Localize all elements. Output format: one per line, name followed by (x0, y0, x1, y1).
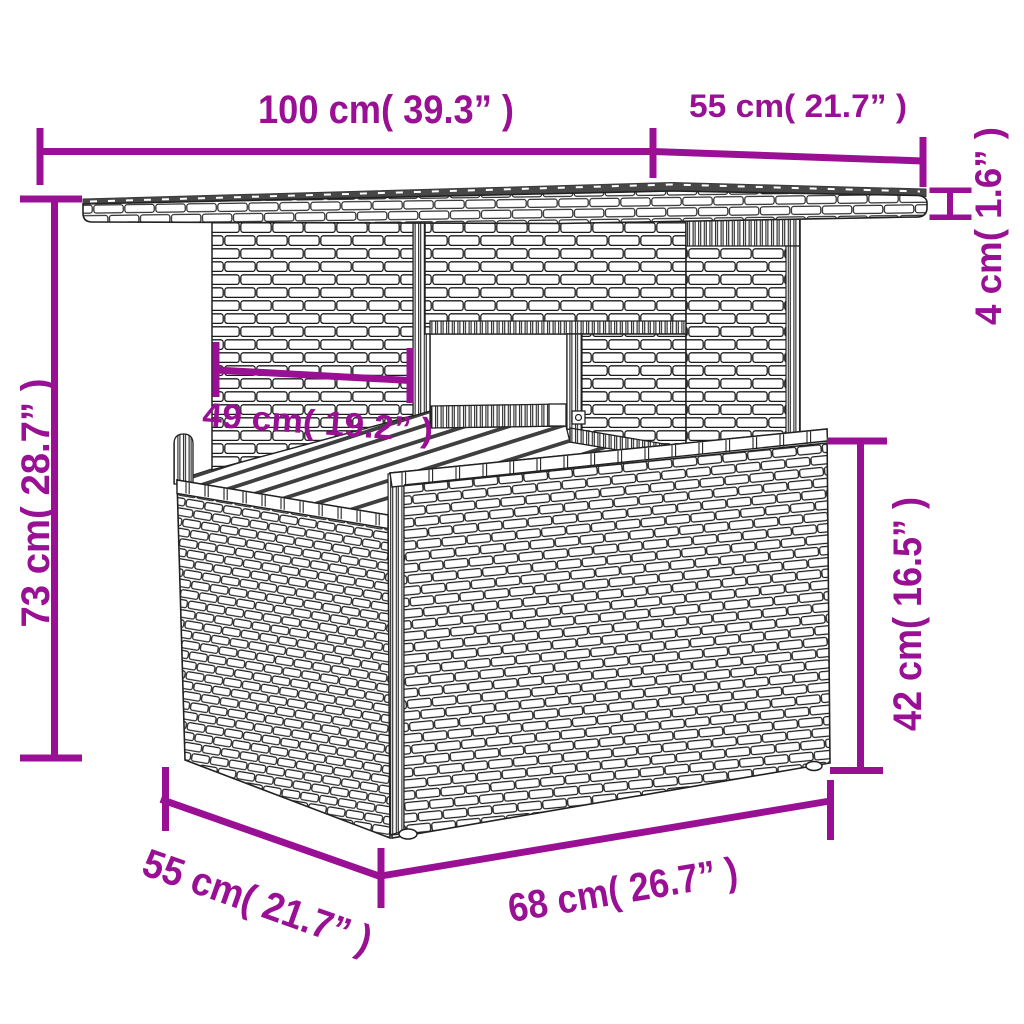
svg-text:73 cm( 28.7” ): 73 cm( 28.7” ) (14, 379, 58, 628)
svg-text:4 cm( 1.6” ): 4 cm( 1.6” ) (968, 127, 1009, 325)
svg-text:100 cm( 39.3” ): 100 cm( 39.3” ) (258, 88, 514, 132)
svg-text:55 cm( 21.7” ): 55 cm( 21.7” ) (689, 88, 907, 124)
svg-text:42 cm( 16.5” ): 42 cm( 16.5” ) (886, 497, 930, 731)
